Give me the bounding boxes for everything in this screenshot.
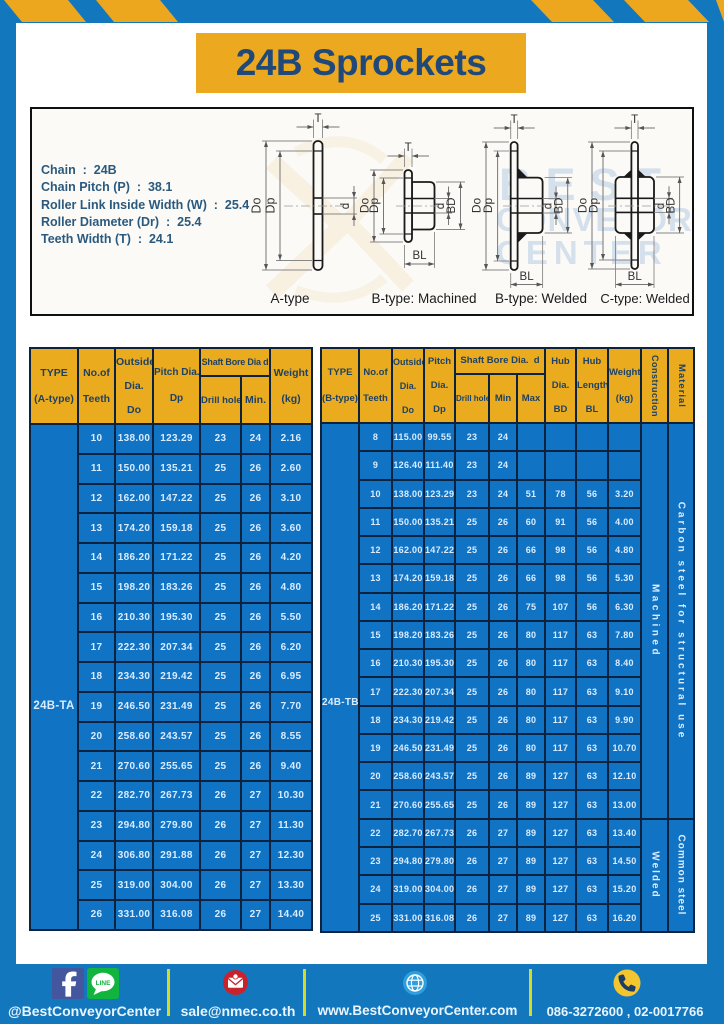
svg-text:B-type: Machined: B-type: Machined (371, 291, 476, 306)
svg-text:T: T (405, 142, 412, 154)
svg-text:d: d (340, 203, 352, 209)
svg-text:Do: Do (250, 197, 264, 213)
svg-text:BD: BD (665, 198, 677, 214)
svg-text:BD: BD (446, 198, 458, 214)
svg-text:T: T (314, 113, 321, 125)
svg-text:Dp: Dp (264, 197, 278, 213)
svg-text:Dp: Dp (367, 198, 381, 214)
svg-text:T: T (631, 114, 638, 126)
svg-text:CENTER: CENTER (496, 234, 668, 271)
svg-text:B-type: Welded: B-type: Welded (495, 291, 587, 306)
svg-text:BD: BD (553, 198, 565, 214)
svg-text:Dp: Dp (587, 198, 601, 214)
svg-text:BL: BL (412, 250, 427, 262)
svg-text:BL: BL (520, 271, 535, 283)
svg-text:Dp: Dp (481, 198, 495, 214)
svg-text:BL: BL (628, 271, 643, 283)
svg-text:LINE: LINE (96, 980, 111, 987)
svg-text:T: T (511, 114, 518, 126)
svg-text:A-type: A-type (270, 291, 309, 306)
svg-text:C-type: Welded: C-type: Welded (600, 291, 689, 306)
